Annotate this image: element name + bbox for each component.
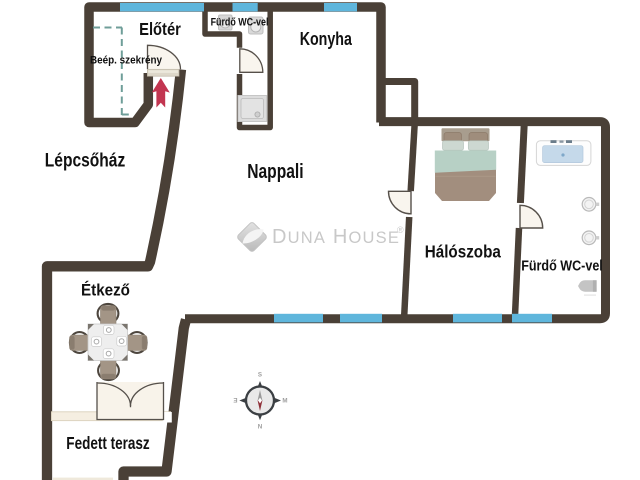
svg-text:Lépcsőház: Lépcsőház	[45, 149, 126, 171]
svg-text:DUNA HOUSE: DUNA HOUSE	[272, 226, 400, 248]
svg-text:Előtér: Előtér	[139, 20, 181, 40]
svg-text:Beép. szekrény: Beép. szekrény	[90, 55, 162, 67]
svg-text:S: S	[258, 372, 262, 379]
svg-text:Fedett terasz: Fedett terasz	[66, 434, 149, 453]
svg-text:Hálószoba: Hálószoba	[425, 242, 502, 261]
svg-text:Fürdő WC-vel: Fürdő WC-vel	[211, 17, 269, 29]
svg-text:Étkező: Étkező	[81, 280, 130, 300]
svg-text:Ǝ: Ǝ	[233, 398, 237, 405]
svg-text:N: N	[258, 424, 263, 431]
svg-text:M: M	[282, 398, 287, 405]
svg-text:Fürdő WC-vel: Fürdő WC-vel	[521, 258, 603, 274]
svg-text:Nappali: Nappali	[247, 160, 303, 182]
svg-text:®: ®	[397, 225, 404, 235]
svg-text:Konyha: Konyha	[300, 30, 353, 50]
